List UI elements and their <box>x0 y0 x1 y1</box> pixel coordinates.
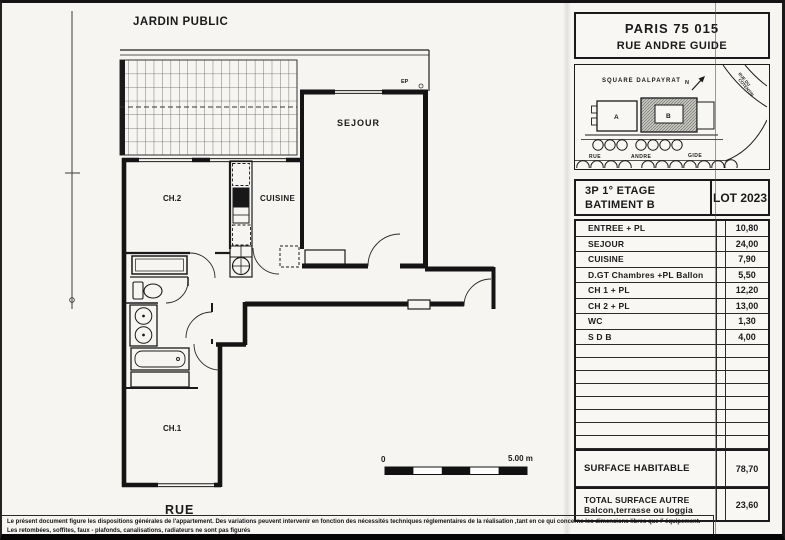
cuisine-label: CUISINE <box>260 194 296 203</box>
empty-row <box>576 397 768 410</box>
total-surface-label: TOTAL SURFACE AUTRE <box>584 495 716 505</box>
north-arrow: N <box>685 76 705 90</box>
title-block: PARIS 75 015 RUE ANDRE GUIDE SQUARE DALP… <box>574 12 770 522</box>
street-gide-label: GIDE <box>688 153 702 159</box>
ch2-label: CH.2 <box>163 194 182 203</box>
ch2-closet <box>132 256 187 274</box>
terrace <box>120 50 429 155</box>
garden-boundary <box>65 11 80 309</box>
lot-building-line: BATIMENT B <box>585 198 710 212</box>
table-row: CUISINE7,90 <box>576 252 768 268</box>
sejour-label: SEJOUR <box>337 118 380 128</box>
table-row: D.GT Chambres +PL Ballon5,50 <box>576 268 768 284</box>
total-surface-sublabel: Balcon,terrasse ou loggia <box>584 505 716 515</box>
lot-floor-line: 3P 1° ETAGE <box>585 184 710 198</box>
scan-shadow-band <box>563 3 571 537</box>
trees-row-1 <box>593 140 682 150</box>
empty-row <box>576 436 768 449</box>
north-label: N <box>685 80 689 86</box>
table-row: CH 2 + PL13,00 <box>576 299 768 315</box>
appliance-fridge <box>233 188 249 206</box>
fold-line <box>715 3 716 534</box>
disclaimer-line-1: Le présent document figure les dispositi… <box>7 518 710 527</box>
wc-toilet <box>133 282 162 299</box>
title-block-header: PARIS 75 015 RUE ANDRE GUIDE <box>574 12 770 59</box>
empty-row <box>576 371 768 384</box>
empty-row <box>576 384 768 397</box>
square-label: SQUARE DALPAYRAT <box>602 78 681 84</box>
disclaimer: Le présent document figure les dispositi… <box>2 515 714 537</box>
table-row: ENTREE + PL10,80 <box>576 221 768 237</box>
table-row: WC1,30 <box>576 314 768 330</box>
empty-row <box>576 423 768 436</box>
street-rue-label: RUE <box>589 154 601 160</box>
scale-zero: 0 <box>381 455 386 464</box>
street-andre-label: ANDRE <box>631 154 651 160</box>
kitchen-unit <box>230 161 299 277</box>
bathroom-fixtures <box>130 305 189 387</box>
disclaimer-line-2: Les retombées, soffites, faux - plafonds… <box>7 527 710 536</box>
empty-row <box>576 410 768 423</box>
scale-bar: 0 5.00 m <box>381 454 533 475</box>
areas-table: ENTREE + PL10,80 SEJOUR24,00 CUISINE7,90… <box>574 219 770 522</box>
building-a-label: A <box>614 114 619 121</box>
buildings <box>581 98 723 140</box>
balcony: EP <box>401 50 429 91</box>
diagonal-street: RUE DU COTENTIN <box>723 65 767 107</box>
floor-plan-page: EP <box>0 0 785 540</box>
location-map: SQUARE DALPAYRAT N RUE DU COTENTIN <box>574 64 770 170</box>
jardin-public-label: JARDIN PUBLIC <box>133 16 228 28</box>
ch1-label: CH.1 <box>163 424 182 433</box>
empty-row <box>576 345 768 358</box>
ep-label: EP <box>401 79 409 85</box>
building-b-label: B <box>666 113 671 120</box>
table-row: CH 1 + PL12,20 <box>576 283 768 299</box>
table-row: SEJOUR24,00 <box>576 237 768 253</box>
surface-habitable-row: SURFACE HABITABLE 78,70 <box>576 449 768 487</box>
sejour-radiator <box>305 250 345 264</box>
scale-max: 5.00 m <box>508 454 533 463</box>
city-title: PARIS 75 015 <box>576 21 768 36</box>
cuisine-closet <box>280 246 299 267</box>
location-map-svg: SQUARE DALPAYRAT N RUE DU COTENTIN <box>575 65 767 168</box>
street-title: RUE ANDRE GUIDE <box>576 40 768 52</box>
empty-row <box>576 358 768 371</box>
lot-header: 3P 1° ETAGE BATIMENT B LOT 2023 <box>574 179 770 216</box>
table-row: S D B4,00 <box>576 330 768 346</box>
lot-number: LOT 2023 <box>710 181 768 214</box>
entrance-doormat <box>408 300 430 309</box>
floor-plan-svg: EP <box>2 3 572 540</box>
